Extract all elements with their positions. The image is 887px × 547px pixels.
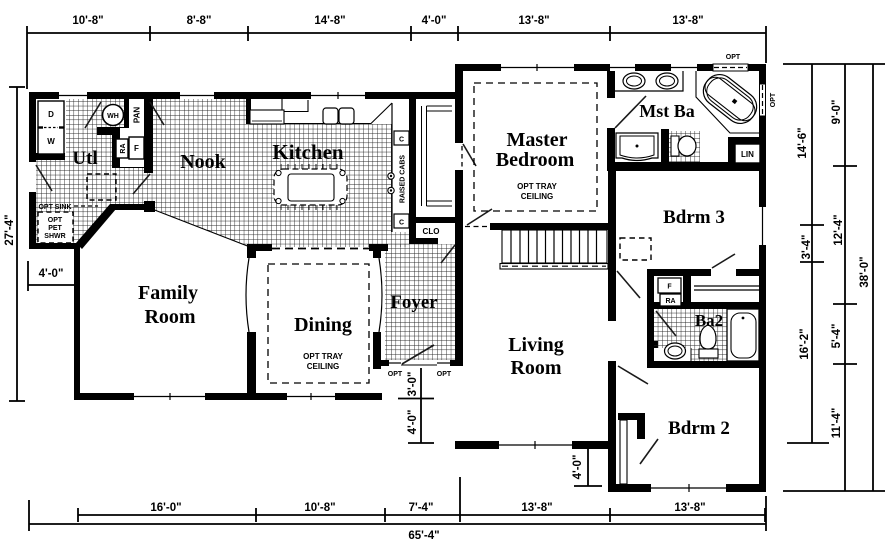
svg-text:3'-0": 3'-0" xyxy=(407,372,419,397)
svg-text:Bdrm 2: Bdrm 2 xyxy=(668,418,730,439)
svg-text:13'-8": 13'-8" xyxy=(521,502,552,514)
svg-text:RAISED CABS: RAISED CABS xyxy=(400,155,407,204)
svg-text:Master: Master xyxy=(506,129,567,151)
svg-text:CLO: CLO xyxy=(423,227,440,236)
svg-text:OPT SINK: OPT SINK xyxy=(38,204,71,211)
svg-text:13'-8": 13'-8" xyxy=(674,502,705,514)
svg-text:4'-0": 4'-0" xyxy=(407,410,419,435)
svg-text:14'-8": 14'-8" xyxy=(314,15,345,27)
svg-text:65'-4": 65'-4" xyxy=(408,530,439,542)
svg-text:Room: Room xyxy=(144,306,195,328)
svg-text:Living: Living xyxy=(508,334,564,356)
svg-text:CEILING: CEILING xyxy=(521,192,553,201)
svg-text:OPT: OPT xyxy=(388,371,403,378)
svg-text:W: W xyxy=(47,137,55,146)
svg-text:RA: RA xyxy=(120,143,127,153)
svg-text:PET: PET xyxy=(48,225,62,232)
svg-text:Utl: Utl xyxy=(72,148,97,169)
svg-text:13'-8": 13'-8" xyxy=(672,15,703,27)
svg-text:10'-8": 10'-8" xyxy=(304,502,335,514)
svg-text:OPT: OPT xyxy=(770,92,777,107)
svg-text:Bedroom: Bedroom xyxy=(496,149,575,171)
svg-text:Foyer: Foyer xyxy=(390,292,438,313)
svg-text:CEILING: CEILING xyxy=(307,362,339,371)
svg-text:OPT: OPT xyxy=(48,217,63,224)
svg-text:4'-0": 4'-0" xyxy=(572,455,584,480)
svg-text:27'-4": 27'-4" xyxy=(4,214,16,245)
svg-text:OPT TRAY: OPT TRAY xyxy=(517,182,557,191)
svg-text:OPT TRAY: OPT TRAY xyxy=(303,352,343,361)
svg-text:OPT: OPT xyxy=(437,371,452,378)
svg-text:13'-8": 13'-8" xyxy=(518,15,549,27)
svg-text:10'-8": 10'-8" xyxy=(72,15,103,27)
svg-text:F: F xyxy=(667,284,672,291)
svg-text:RA: RA xyxy=(665,298,675,305)
svg-text:Kitchen: Kitchen xyxy=(272,140,343,164)
svg-text:Mst Ba: Mst Ba xyxy=(639,101,695,121)
svg-text:F: F xyxy=(134,144,139,153)
svg-text:4'-0": 4'-0" xyxy=(39,268,64,280)
svg-text:D: D xyxy=(48,110,54,119)
svg-text:11'-4": 11'-4" xyxy=(831,408,843,439)
svg-text:Ba2: Ba2 xyxy=(695,311,723,330)
svg-text:LIN: LIN xyxy=(741,150,754,159)
svg-text:8'-8": 8'-8" xyxy=(187,15,212,27)
svg-text:7'-4": 7'-4" xyxy=(409,502,434,514)
svg-text:9'-0": 9'-0" xyxy=(831,100,843,125)
svg-text:SHWR: SHWR xyxy=(44,233,65,240)
svg-text:14'-6": 14'-6" xyxy=(797,127,809,158)
svg-text:C: C xyxy=(399,137,404,144)
svg-text:Dining: Dining xyxy=(294,314,352,336)
svg-text:Room: Room xyxy=(510,357,561,379)
svg-text:Family: Family xyxy=(138,282,198,304)
svg-text:4'-0": 4'-0" xyxy=(422,15,447,27)
svg-text:12'-4": 12'-4" xyxy=(833,214,845,245)
svg-text:WH: WH xyxy=(107,113,119,120)
svg-text:Nook: Nook xyxy=(180,151,226,173)
svg-text:38'-0": 38'-0" xyxy=(859,256,871,287)
svg-text:PAN: PAN xyxy=(133,107,142,124)
svg-text:Bdrm 3: Bdrm 3 xyxy=(663,207,725,228)
svg-text:16'-2": 16'-2" xyxy=(799,328,811,359)
svg-text:3'-4": 3'-4" xyxy=(801,235,813,260)
svg-text:OPT: OPT xyxy=(726,54,741,61)
svg-text:C: C xyxy=(399,220,404,227)
svg-text:16'-0": 16'-0" xyxy=(150,502,181,514)
svg-text:5'-4": 5'-4" xyxy=(831,324,843,349)
